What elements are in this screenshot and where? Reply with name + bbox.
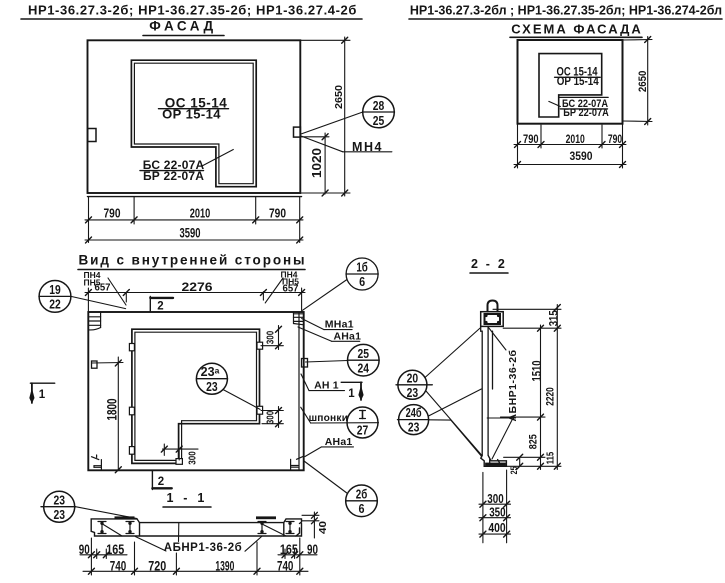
svg-text:350: 350	[489, 506, 505, 520]
svg-text:ПН5: ПН5	[84, 278, 101, 288]
svg-text:315: 315	[549, 310, 561, 327]
svg-text:40: 40	[318, 520, 329, 534]
svg-text:28: 28	[373, 99, 385, 113]
svg-text:АБНР1-36-2б: АБНР1-36-2б	[164, 542, 242, 554]
svg-text:2276: 2276	[182, 280, 213, 294]
svg-text:22: 22	[49, 298, 61, 312]
svg-text:шпонки: шпонки	[309, 413, 349, 424]
svg-text:1800: 1800	[105, 399, 120, 421]
svg-text:2220: 2220	[544, 387, 556, 406]
svg-text:2: 2	[158, 476, 164, 488]
svg-text:АН 1: АН 1	[314, 379, 339, 391]
svg-text:2650: 2650	[637, 71, 649, 93]
svg-text:19: 19	[49, 283, 61, 297]
svg-text:300: 300	[265, 410, 276, 424]
svg-text:1510: 1510	[530, 360, 544, 381]
svg-text:23: 23	[53, 493, 65, 507]
svg-text:90: 90	[307, 542, 318, 557]
svg-text:740: 740	[277, 558, 294, 573]
svg-text:165: 165	[280, 542, 298, 557]
svg-text:400: 400	[488, 521, 505, 535]
svg-text:740: 740	[110, 558, 127, 573]
svg-text:НР1-36.27.3-2бл ; НР1-36.27.3: НР1-36.27.3-2бл ; НР1-36.27.35-2бл; НР1-…	[410, 4, 722, 18]
svg-text:6: 6	[359, 275, 365, 289]
svg-text:ОР 15-14: ОР 15-14	[162, 107, 221, 122]
svg-text:825: 825	[527, 434, 539, 449]
svg-text:2010: 2010	[190, 206, 211, 221]
svg-text:27: 27	[357, 424, 369, 438]
svg-text:25: 25	[373, 114, 385, 128]
svg-text:115: 115	[545, 451, 556, 464]
svg-text:2010: 2010	[566, 132, 585, 146]
svg-text:23: 23	[407, 386, 419, 400]
svg-text:165: 165	[106, 542, 124, 557]
svg-text:20: 20	[407, 371, 419, 385]
svg-text:720: 720	[148, 558, 166, 573]
svg-text:2б: 2б	[356, 487, 368, 501]
svg-text:2650: 2650	[333, 85, 345, 109]
svg-text:790: 790	[523, 132, 539, 146]
svg-text:23: 23	[53, 508, 65, 522]
svg-text:790: 790	[269, 206, 286, 221]
svg-text:2 - 2: 2 - 2	[471, 257, 507, 271]
svg-text:МНа1: МНа1	[325, 319, 354, 331]
svg-text:23: 23	[408, 421, 420, 435]
svg-text:БР 22-07А: БР 22-07А	[563, 107, 609, 119]
svg-text:300: 300	[487, 492, 503, 506]
svg-text:790: 790	[608, 132, 622, 146]
svg-text:ФАСАД: ФАСАД	[149, 18, 216, 33]
svg-text:25: 25	[358, 347, 370, 361]
svg-text:ПН5: ПН5	[282, 277, 299, 287]
svg-text:1: 1	[348, 388, 355, 400]
svg-text:23а: 23а	[201, 365, 220, 379]
svg-text:АБНР1-36-2б: АБНР1-36-2б	[507, 349, 519, 421]
svg-text:25: 25	[509, 466, 519, 474]
svg-text:3590: 3590	[570, 149, 593, 163]
svg-text:Вид с внутренней стороны: Вид с внутренней стороны	[79, 252, 307, 267]
svg-text:1б: 1б	[356, 261, 368, 275]
svg-text:300: 300	[265, 330, 276, 344]
svg-text:1 - 1: 1 - 1	[166, 491, 207, 505]
svg-text:1: 1	[39, 389, 46, 401]
svg-text:90: 90	[79, 542, 90, 557]
svg-text:24: 24	[358, 361, 370, 375]
svg-text:790: 790	[104, 206, 121, 221]
svg-text:24б: 24б	[406, 406, 422, 420]
svg-text:23: 23	[206, 380, 218, 394]
svg-text:1390: 1390	[215, 558, 234, 573]
svg-text:3590: 3590	[180, 224, 201, 240]
svg-text:ОР 15-14: ОР 15-14	[557, 76, 600, 88]
svg-text:300: 300	[187, 451, 198, 465]
svg-text:НР1-36.27.3-2б; НР1-36.27.35-: НР1-36.27.3-2б; НР1-36.27.35-2б; НР1-36.…	[28, 2, 357, 17]
svg-text:1020: 1020	[309, 148, 324, 178]
svg-text:6: 6	[359, 502, 365, 516]
svg-text:2: 2	[157, 301, 163, 313]
svg-text:СХЕМА ФАСАДА: СХЕМА ФАСАДА	[511, 22, 643, 37]
svg-text:БР 22-07А: БР 22-07А	[143, 169, 204, 183]
